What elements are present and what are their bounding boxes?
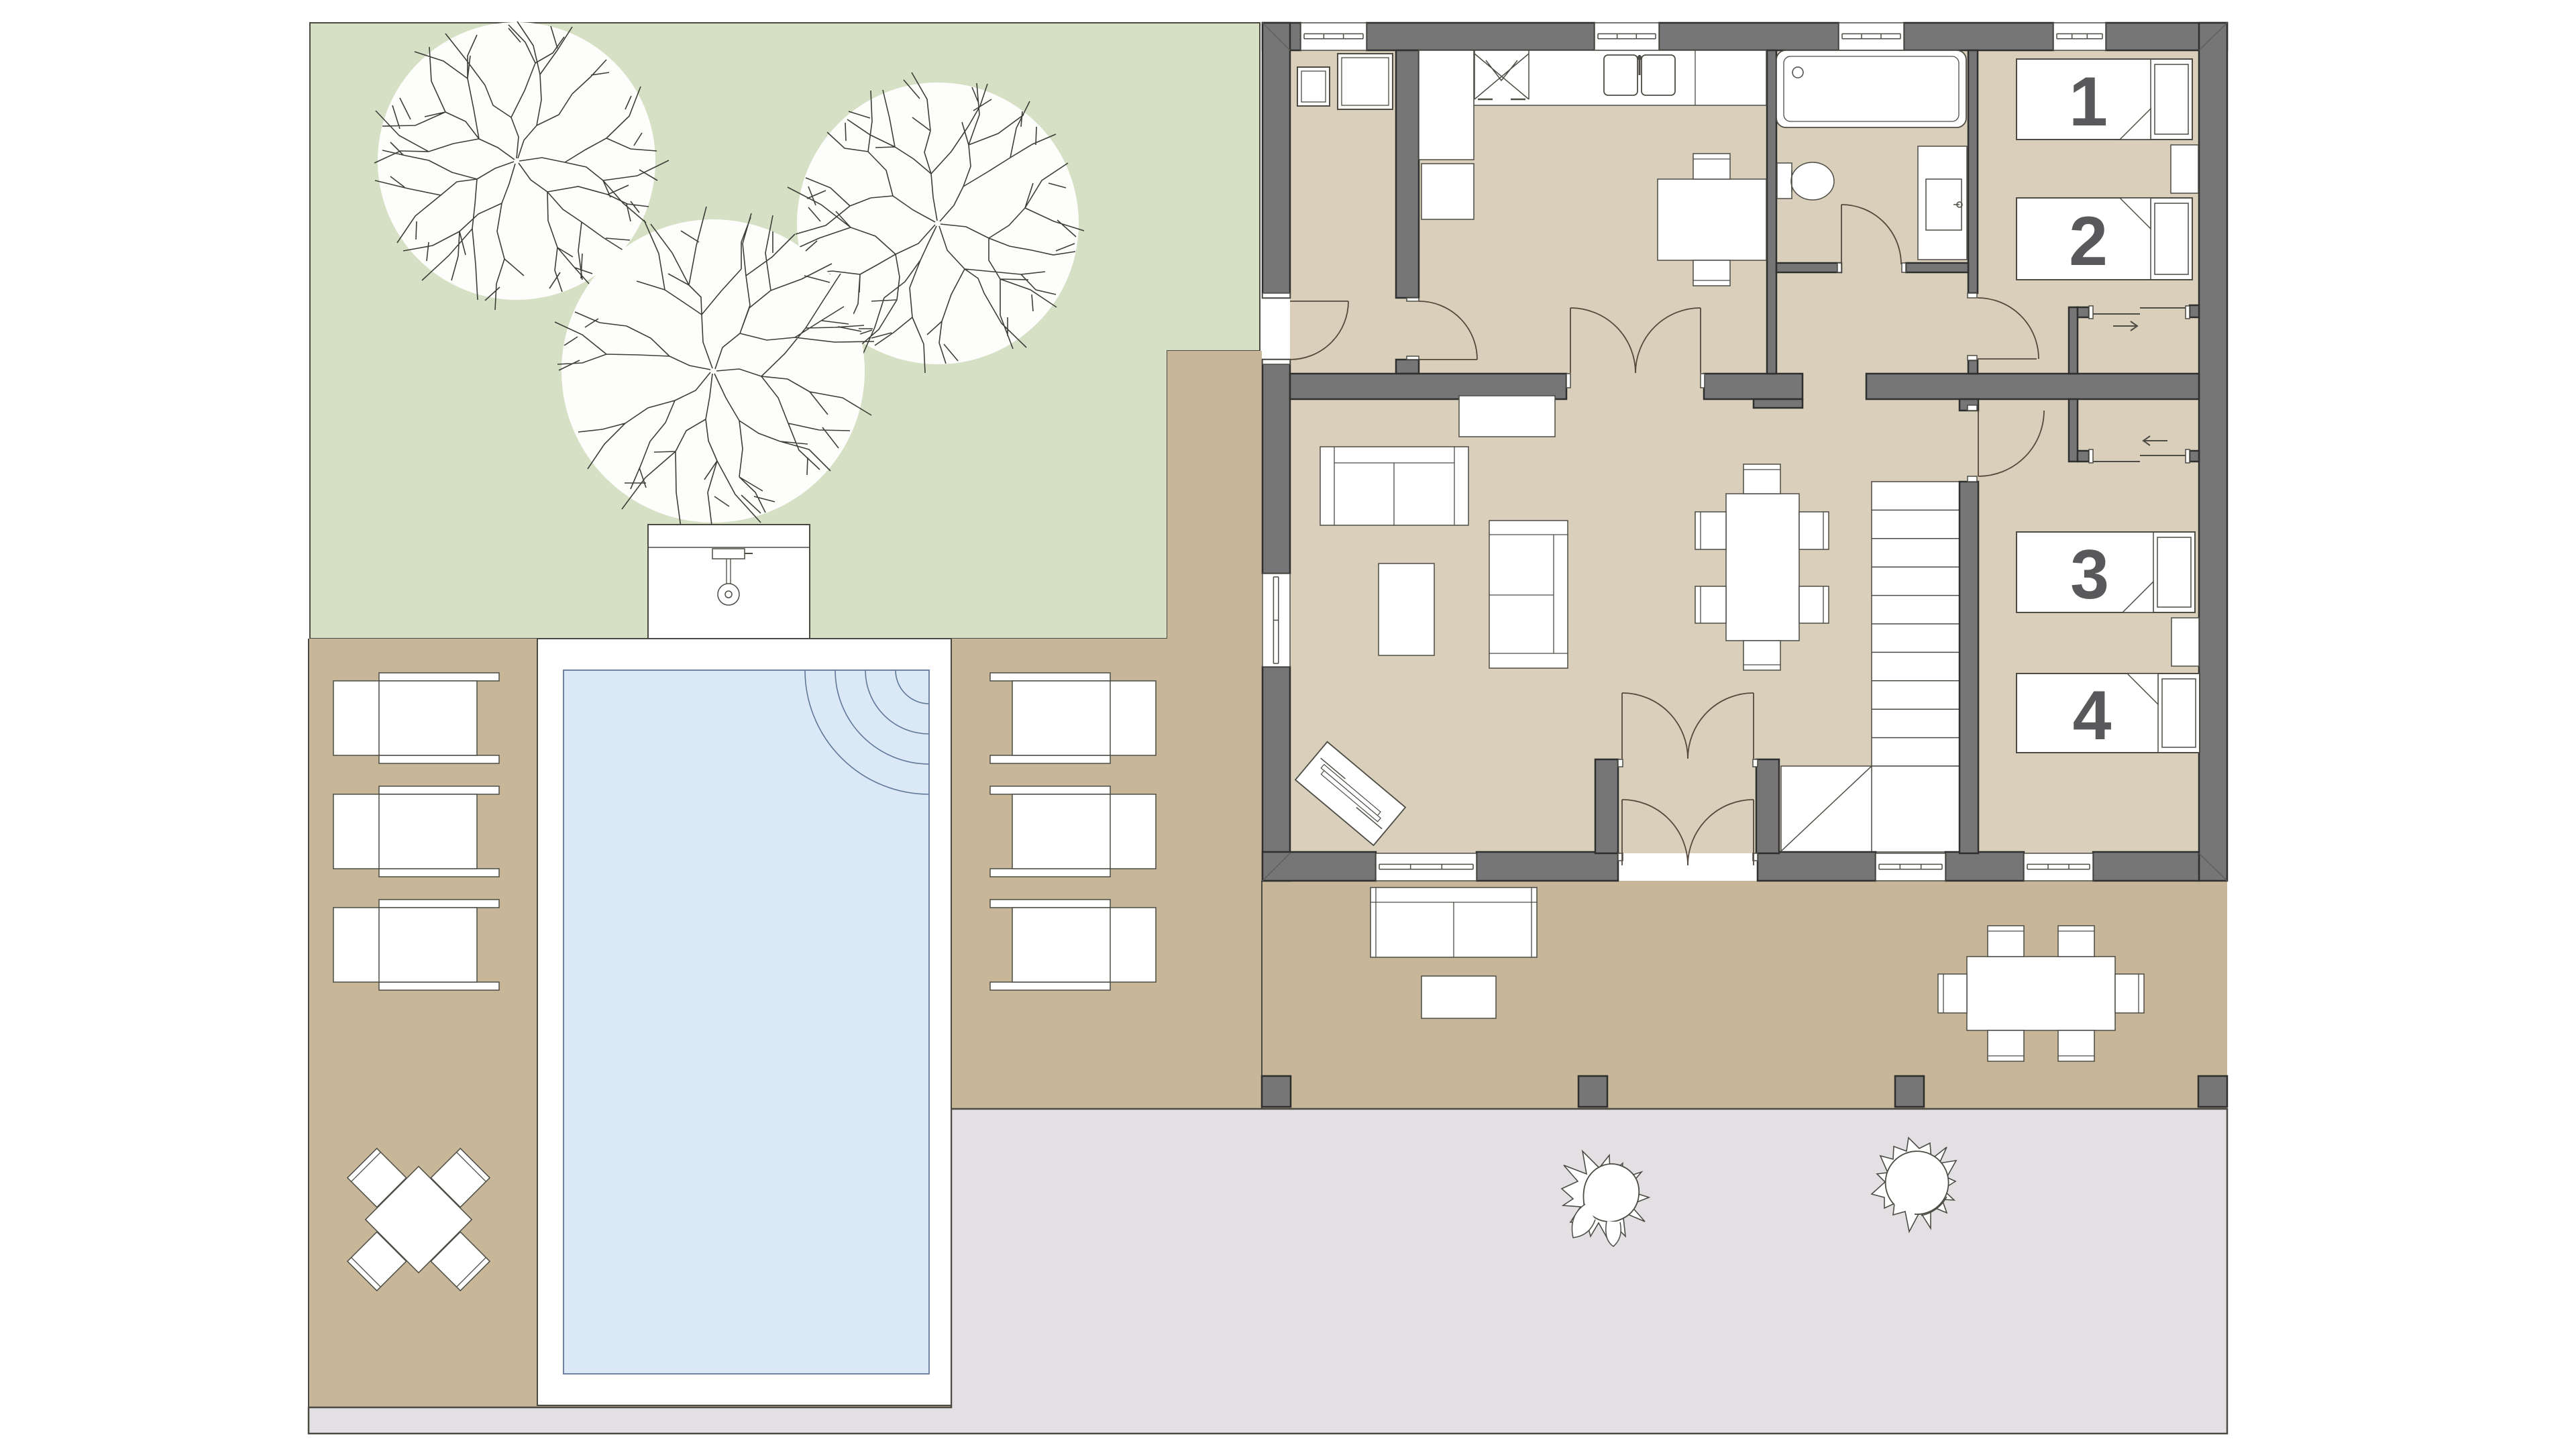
svg-text:2: 2 — [2069, 203, 2108, 280]
svg-text:1: 1 — [2069, 63, 2108, 141]
svg-text:3: 3 — [2070, 536, 2109, 614]
svg-text:4: 4 — [2073, 677, 2112, 755]
